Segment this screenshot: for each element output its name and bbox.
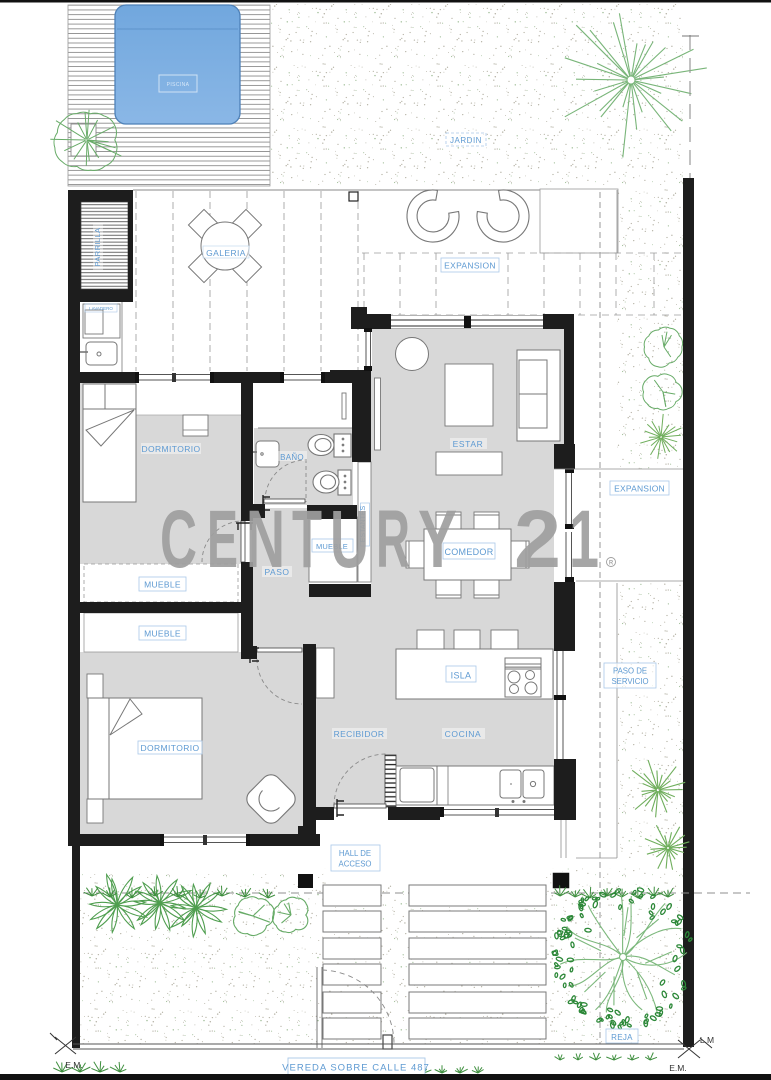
svg-text:MUEBLE: MUEBLE [144, 629, 181, 639]
svg-text:2: 2 [514, 494, 561, 585]
svg-text:EXPANSION: EXPANSION [444, 261, 496, 271]
svg-text:T: T [292, 494, 322, 585]
svg-text:COCINA: COCINA [445, 729, 482, 739]
svg-text:N: N [246, 494, 285, 585]
svg-text:PARRILLA: PARRILLA [93, 228, 102, 267]
svg-text:R: R [376, 494, 410, 585]
svg-text:DORMITORIO: DORMITORIO [140, 743, 199, 753]
svg-text:EXPANSION: EXPANSION [614, 484, 665, 494]
svg-text:REJA: REJA [611, 1033, 633, 1042]
svg-text:U: U [330, 494, 369, 585]
svg-text:LAVADERO: LAVADERO [89, 306, 113, 311]
svg-text:ISLA: ISLA [451, 671, 472, 681]
svg-text:PASO DE: PASO DE [613, 667, 647, 676]
svg-text:SERVICIO: SERVICIO [611, 677, 648, 686]
svg-text:L.M: L.M [700, 1035, 714, 1045]
svg-text:PISCINA: PISCINA [167, 82, 190, 88]
svg-text:E: E [207, 494, 238, 585]
svg-text:JARDIN: JARDIN [450, 136, 482, 145]
svg-text:DORMITORIO: DORMITORIO [141, 444, 200, 454]
svg-text:ACCESO: ACCESO [339, 860, 372, 869]
svg-text:ESTAR: ESTAR [453, 439, 484, 449]
svg-text:RECIBIDOR: RECIBIDOR [334, 729, 385, 739]
svg-text:GALERIA: GALERIA [206, 248, 246, 258]
svg-text:C: C [160, 494, 197, 585]
svg-text:R: R [609, 561, 614, 567]
svg-text:VEREDA SOBRE CALLE 487: VEREDA SOBRE CALLE 487 [282, 1063, 430, 1074]
svg-text:E.M.: E.M. [65, 1060, 82, 1070]
svg-text:HALL DE: HALL DE [339, 849, 371, 858]
svg-text:E.M.: E.M. [669, 1063, 686, 1073]
svg-text:Y: Y [418, 494, 457, 585]
svg-text:1: 1 [569, 494, 599, 585]
